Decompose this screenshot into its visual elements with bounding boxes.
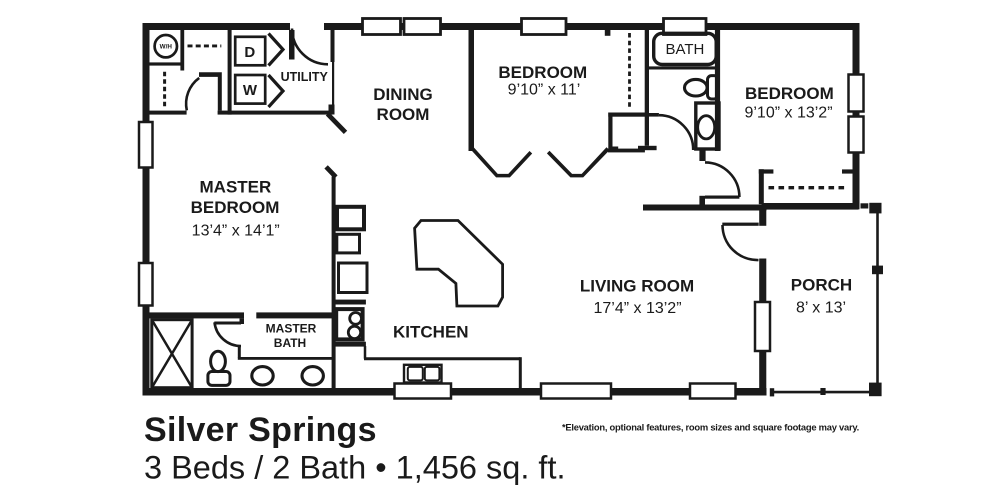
svg-text:DINING: DINING [373,85,433,104]
svg-text:PORCH: PORCH [791,275,852,294]
svg-text:D: D [244,44,255,61]
svg-text:MASTER: MASTER [266,322,317,336]
svg-text:3 Beds / 2 Bath • 1,456 sq. ft: 3 Beds / 2 Bath • 1,456 sq. ft. [144,450,566,486]
svg-text:BEDROOM: BEDROOM [498,63,587,82]
svg-text:UTILITY: UTILITY [281,70,329,84]
svg-text:ROOM: ROOM [377,105,430,124]
svg-text:W/H: W/H [160,44,173,51]
svg-text:W: W [243,82,258,99]
svg-text:*Elevation, optional features,: *Elevation, optional features, room size… [562,422,859,433]
svg-text:BEDROOM: BEDROOM [191,198,280,217]
svg-text:9’10” x 11’: 9’10” x 11’ [508,81,581,98]
svg-text:9’10” x 13’2”: 9’10” x 13’2” [744,104,832,121]
svg-text:LIVING ROOM: LIVING ROOM [580,276,694,295]
svg-text:BATH: BATH [665,41,704,58]
svg-text:BATH: BATH [274,336,306,350]
svg-text:8’ x 13’: 8’ x 13’ [796,300,846,317]
svg-text:Silver Springs: Silver Springs [144,411,377,449]
svg-text:17’4” x 13’2”: 17’4” x 13’2” [593,300,681,317]
svg-text:KITCHEN: KITCHEN [393,322,469,341]
svg-text:13’4” x 14’1”: 13’4” x 14’1” [192,223,280,240]
svg-text:MASTER: MASTER [200,178,272,197]
svg-text:BEDROOM: BEDROOM [745,84,834,103]
